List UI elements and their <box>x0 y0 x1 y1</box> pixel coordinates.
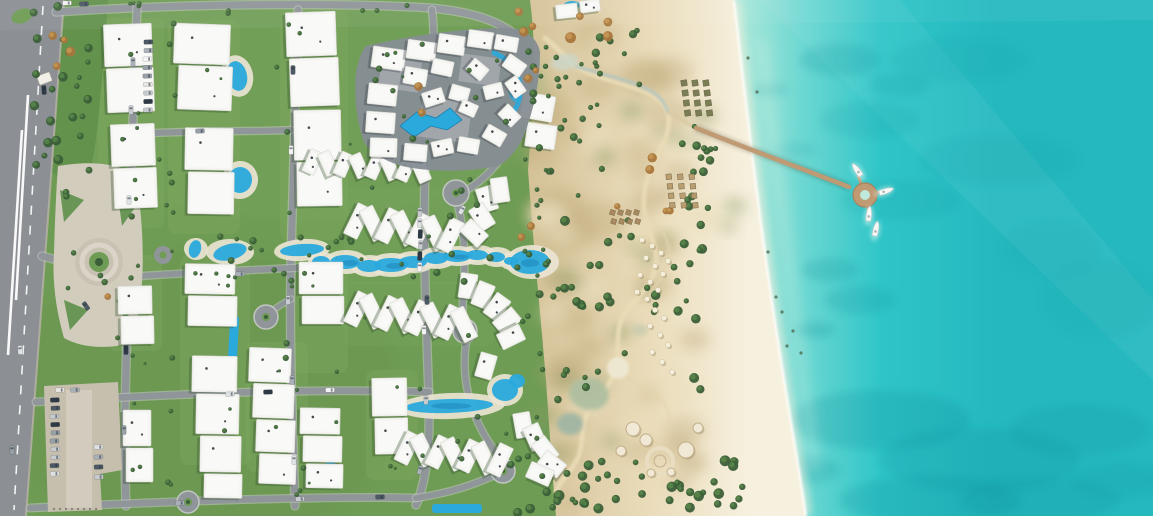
tree-highlight <box>289 278 292 281</box>
tree-highlight <box>520 28 525 33</box>
dune-mottle <box>626 241 641 251</box>
tree-highlight <box>205 68 207 70</box>
tree-highlight <box>42 153 45 156</box>
car-body <box>143 108 152 113</box>
dune-mottle <box>594 149 617 166</box>
car-body <box>131 58 135 67</box>
tree-highlight <box>401 75 403 77</box>
tree-highlight <box>675 480 679 484</box>
car-body <box>124 346 128 355</box>
tree-highlight <box>129 214 133 218</box>
tree-highlight <box>165 203 168 206</box>
tree-highlight <box>538 352 541 355</box>
car-windshield <box>149 49 151 52</box>
tree-highlight <box>597 34 602 39</box>
tree-highlight <box>702 146 706 150</box>
cabana <box>684 110 691 117</box>
car-body <box>235 272 244 277</box>
tree-highlight <box>249 246 252 249</box>
beach-umbrella <box>659 359 664 364</box>
tree-highlight <box>121 137 124 140</box>
bollard <box>89 508 91 510</box>
tree-highlight <box>595 369 598 372</box>
tree-highlight <box>222 429 225 432</box>
tree-highlight <box>33 71 37 75</box>
tree-highlight <box>535 203 538 206</box>
tree-highlight <box>544 168 546 170</box>
tree-highlight <box>555 491 561 497</box>
car <box>375 495 384 500</box>
car-windshield <box>292 457 295 459</box>
car <box>417 207 422 216</box>
car-windshield <box>56 407 58 410</box>
bulb-tree <box>186 500 190 504</box>
tree-highlight <box>518 234 522 238</box>
tree-highlight <box>581 483 587 489</box>
cabana <box>669 202 675 208</box>
tree-highlight <box>71 251 74 254</box>
car-windshield <box>55 472 57 475</box>
tree-highlight <box>524 158 526 160</box>
tree-highlight <box>596 476 599 479</box>
car-windshield <box>61 388 63 391</box>
car-body <box>129 106 133 115</box>
tree-highlight <box>697 386 702 391</box>
tree-highlight <box>599 166 602 169</box>
tree-highlight <box>360 258 362 260</box>
car-body <box>51 455 60 460</box>
reef-patch <box>824 286 896 314</box>
beach-speck <box>755 90 758 93</box>
car <box>50 439 59 444</box>
tree-highlight <box>544 45 547 48</box>
bulb-tree <box>454 191 458 195</box>
car-body <box>289 146 293 155</box>
car-windshield <box>55 464 57 467</box>
tree-highlight <box>136 126 138 128</box>
car-windshield <box>99 445 101 448</box>
car-windshield <box>181 501 183 504</box>
beach-speck <box>746 56 749 59</box>
tree-highlight <box>78 133 82 137</box>
car-windshield <box>56 431 58 434</box>
tree-highlight <box>539 198 542 201</box>
tree-highlight <box>298 31 300 33</box>
cabana <box>689 174 695 180</box>
tree-highlight <box>168 171 171 174</box>
tree-highlight <box>33 162 37 166</box>
tree-highlight <box>535 188 538 191</box>
tree-highlight <box>63 190 67 194</box>
residential-slab-roof <box>176 26 228 63</box>
residential-slab-roof <box>187 266 232 292</box>
car <box>129 106 133 115</box>
car <box>290 376 294 385</box>
dome-tent <box>693 423 703 433</box>
tree-highlight <box>678 487 681 490</box>
tree-highlight <box>347 237 349 239</box>
tree-highlight <box>605 239 610 244</box>
tree-highlight <box>539 74 542 77</box>
tree-highlight <box>596 303 601 308</box>
tree-highlight <box>666 497 670 501</box>
dome-tent <box>640 434 652 446</box>
tree-highlight <box>713 146 716 149</box>
car-body <box>143 91 152 96</box>
tree-highlight <box>283 355 286 358</box>
dune-pond <box>557 413 583 435</box>
tree-highlight <box>75 84 78 87</box>
tree-highlight <box>536 274 538 276</box>
car <box>94 475 103 480</box>
beach-umbrella <box>665 342 670 347</box>
car <box>127 196 131 205</box>
car-body <box>143 82 152 87</box>
car-body <box>286 296 290 305</box>
tree-highlight <box>52 137 57 142</box>
tree-highlight <box>418 387 421 390</box>
car-body <box>144 40 153 45</box>
tree-highlight <box>298 489 301 492</box>
car-body <box>263 390 272 395</box>
residential-slab-roof <box>187 130 231 168</box>
car-body <box>418 240 423 249</box>
tree-highlight <box>639 474 642 477</box>
tree-highlight <box>523 249 526 252</box>
tree-highlight <box>54 63 58 67</box>
car-body <box>144 99 153 104</box>
reef-patch <box>820 102 920 138</box>
beach-umbrella <box>634 289 639 294</box>
residential-slab-roof <box>198 396 237 432</box>
pool-deep-swirl <box>342 260 358 266</box>
tree-highlight <box>558 125 562 129</box>
car-windshield <box>76 388 78 391</box>
car <box>55 388 64 393</box>
tree-highlight <box>377 66 381 70</box>
car <box>50 463 59 468</box>
tree-highlight <box>461 279 465 283</box>
tree-highlight <box>67 48 72 53</box>
tree-highlight <box>514 509 519 514</box>
car-windshield <box>124 347 127 349</box>
car <box>51 422 60 427</box>
cabana <box>695 110 702 117</box>
car <box>41 85 46 94</box>
cabana <box>683 100 690 107</box>
tree-highlight <box>373 78 376 81</box>
tree-highlight <box>583 384 587 388</box>
tree-highlight <box>576 194 579 197</box>
lap-pool <box>432 504 482 513</box>
tree-highlight <box>129 276 132 279</box>
car-windshield <box>56 456 58 459</box>
tree-highlight <box>633 460 636 463</box>
tree-highlight <box>105 294 109 298</box>
dune-mottle <box>720 220 737 232</box>
tree-highlight <box>508 462 512 466</box>
car-body <box>175 501 184 506</box>
tree-highlight <box>116 336 119 339</box>
tree-highlight <box>133 402 135 404</box>
car-windshield <box>289 147 292 149</box>
reef-patch <box>920 134 1080 186</box>
tree-highlight <box>639 491 643 495</box>
beach-umbrella <box>639 237 644 242</box>
tree-highlight <box>573 500 576 503</box>
car-windshield <box>149 40 151 43</box>
car-windshield <box>269 390 271 393</box>
tree-highlight <box>339 235 342 238</box>
tree-highlight <box>250 238 254 242</box>
tree-highlight <box>98 273 101 276</box>
car <box>124 346 128 355</box>
tree-highlight <box>229 408 231 410</box>
tree-highlight <box>303 271 306 274</box>
reef-patch <box>1010 404 1150 456</box>
car <box>424 396 428 405</box>
tree-highlight <box>173 93 176 96</box>
beach-umbrella <box>665 258 670 263</box>
tree-highlight <box>579 472 584 477</box>
beach-umbrella <box>652 307 657 312</box>
tree-highlight <box>218 234 222 238</box>
tree-highlight <box>131 468 133 470</box>
car-body <box>50 439 59 444</box>
car <box>263 390 272 395</box>
pool <box>509 374 525 388</box>
tree-highlight <box>167 42 170 45</box>
tree-highlight <box>473 95 476 98</box>
tree-highlight <box>613 496 618 501</box>
beach-umbrella <box>657 332 662 337</box>
car-body <box>417 207 422 216</box>
tree-highlight <box>274 425 276 427</box>
tree-highlight <box>692 315 697 320</box>
tree-highlight <box>543 488 548 493</box>
tree-highlight <box>535 436 538 439</box>
residential-slab-roof <box>126 413 149 444</box>
car-body <box>94 455 103 460</box>
car-body <box>325 388 334 393</box>
residential-slab-roof <box>305 438 339 460</box>
beach-umbrella <box>637 272 642 277</box>
reef-patch <box>802 258 858 282</box>
tree-highlight <box>272 268 275 271</box>
car-windshield <box>99 465 101 468</box>
beach-umbrella <box>655 287 660 292</box>
car-body <box>291 66 295 75</box>
tree-highlight <box>80 114 83 117</box>
car <box>51 455 60 460</box>
tree-highlight <box>571 134 575 138</box>
car <box>143 74 152 79</box>
car <box>51 447 60 452</box>
car-windshield <box>419 231 422 233</box>
tree-highlight <box>617 234 620 237</box>
car-body <box>51 422 60 427</box>
tree-highlight <box>528 223 532 227</box>
tree-highlight <box>278 370 280 372</box>
tree-highlight <box>421 454 424 457</box>
car <box>70 388 79 393</box>
tree-highlight <box>295 388 297 390</box>
car <box>144 40 153 45</box>
car-windshield <box>149 108 151 111</box>
car-windshield <box>122 427 125 429</box>
car-windshield <box>99 455 101 458</box>
car <box>291 66 295 75</box>
tree-highlight <box>411 275 414 278</box>
bollard <box>59 508 61 510</box>
tree-highlight <box>693 142 698 147</box>
residential-slab-roof <box>113 126 153 164</box>
pool-deep-swirl <box>431 403 471 409</box>
tree-highlight <box>505 432 507 434</box>
car-windshield <box>18 347 21 349</box>
tree-highlight <box>561 217 566 222</box>
tree-highlight <box>546 94 549 97</box>
car-body <box>143 57 152 62</box>
tree-highlight <box>495 59 497 61</box>
tree-highlight <box>66 286 69 289</box>
reef-patch <box>890 38 1030 82</box>
residential-slab-roof <box>292 60 337 105</box>
cabana <box>691 193 697 199</box>
car-body <box>225 392 234 397</box>
beach-speck <box>791 329 794 332</box>
car-windshield <box>56 398 58 401</box>
tree-highlight <box>555 396 559 400</box>
residential-slab-roof <box>302 265 341 292</box>
residential-slab-roof <box>261 456 294 482</box>
car <box>9 445 14 454</box>
tree-highlight <box>731 503 735 507</box>
tree-highlight <box>526 49 530 53</box>
cabana <box>705 100 712 107</box>
car <box>225 392 234 397</box>
cabana <box>694 100 701 107</box>
tree-highlight <box>503 119 506 122</box>
bollard <box>77 508 79 510</box>
tree-highlight <box>334 239 337 242</box>
car-body <box>418 229 423 238</box>
car <box>143 57 152 62</box>
car <box>143 91 152 96</box>
car-windshield <box>42 87 45 89</box>
tree-highlight <box>530 90 534 94</box>
tree-highlight <box>62 37 66 41</box>
tree-highlight <box>326 245 329 248</box>
tree-highlight <box>707 157 712 162</box>
tree-highlight <box>563 118 566 121</box>
tree-highlight <box>541 248 543 250</box>
tree-highlight <box>697 248 700 251</box>
car-windshield <box>424 397 427 399</box>
beach-umbrella <box>644 296 649 301</box>
tree-highlight <box>459 188 463 192</box>
roof-hatch <box>141 433 143 435</box>
tree-highlight <box>85 45 90 50</box>
residential-slab-roof <box>190 174 232 212</box>
tree-highlight <box>695 492 701 498</box>
tree-highlight <box>86 167 90 171</box>
car-body <box>417 251 422 260</box>
dome-tent <box>616 446 626 456</box>
car-body <box>295 497 304 502</box>
tree-highlight <box>599 458 603 462</box>
tree-highlight <box>525 454 528 457</box>
tree-highlight <box>84 96 89 101</box>
dune-mottle <box>574 335 608 359</box>
tree-highlight <box>551 294 554 297</box>
car-windshield <box>290 377 293 379</box>
residential-slab-roof <box>120 288 149 312</box>
car-body <box>50 398 59 403</box>
car-windshield <box>418 253 421 255</box>
tree-highlight <box>284 341 288 345</box>
tree-highlight <box>86 60 89 63</box>
clubhouse-pavilion-roof <box>372 140 394 155</box>
car-windshield <box>419 242 422 244</box>
tree-highlight <box>290 285 292 287</box>
residential-slab-roof <box>123 318 151 341</box>
car-windshield <box>418 209 421 211</box>
bulb-tree <box>264 315 268 319</box>
clubhouse-pavilion-roof <box>368 114 393 132</box>
cabana <box>666 174 672 180</box>
tree-highlight <box>538 216 540 218</box>
tree-highlight <box>349 143 351 145</box>
car <box>292 456 296 465</box>
car <box>286 296 290 305</box>
tree-highlight <box>298 235 301 238</box>
tree-highlight <box>566 33 572 39</box>
tree-highlight <box>585 461 590 466</box>
car-windshield <box>148 74 150 77</box>
car-windshield <box>10 447 13 449</box>
pool <box>466 250 488 260</box>
dune-mottle <box>638 387 662 404</box>
car-body <box>50 471 59 476</box>
car-windshield <box>148 83 150 86</box>
dune-mottle <box>723 198 746 215</box>
car-windshield <box>56 423 58 426</box>
car <box>50 471 59 476</box>
tree-highlight <box>583 375 586 378</box>
tree-highlight <box>233 276 235 278</box>
car-body <box>425 296 429 305</box>
pier-platform-lagoon <box>860 190 870 200</box>
tree-highlight <box>740 484 744 488</box>
beach-speck <box>766 250 769 253</box>
bollard <box>53 508 55 510</box>
tree-highlight <box>628 233 632 237</box>
tree-highlight <box>158 158 160 160</box>
car-body <box>51 430 60 435</box>
tree-highlight <box>466 334 469 337</box>
tree-highlight <box>715 501 719 505</box>
tree-highlight <box>594 504 600 510</box>
tree-highlight <box>308 482 310 484</box>
tree-highlight <box>55 156 60 161</box>
event-pad <box>607 357 629 379</box>
car <box>50 398 59 403</box>
tree-highlight <box>645 285 649 289</box>
tree-highlight <box>468 178 471 181</box>
car <box>425 296 429 305</box>
tree-highlight <box>134 197 136 199</box>
